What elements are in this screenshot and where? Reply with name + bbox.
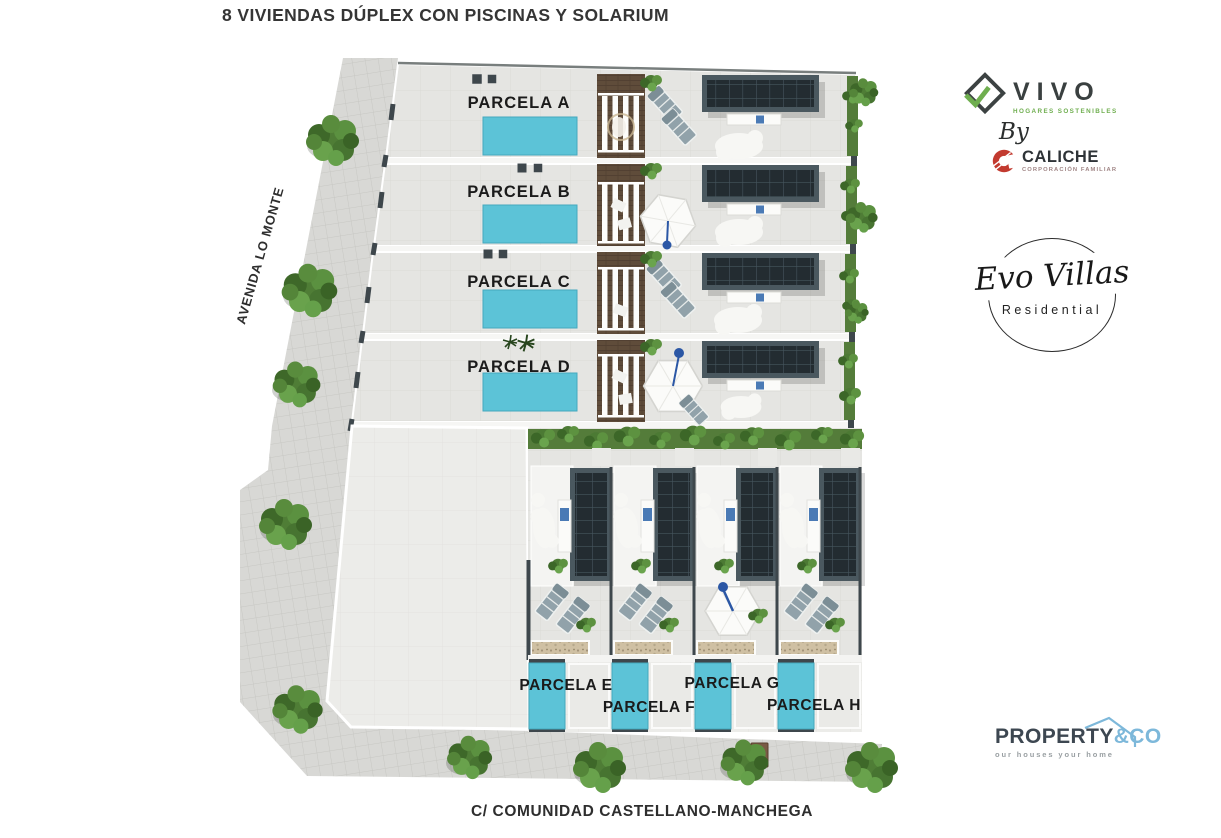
pool-parcel-a [483,117,577,155]
pool-parcel-b [483,205,577,243]
property-co-house-icon [1083,716,1139,748]
pool-parcel-c [483,290,577,328]
deck-parcel-c [597,252,645,334]
vivo-name: VIVO [1013,80,1118,105]
parcel-a-label: PARCELA A [468,94,571,112]
deck-parcel-d [597,340,645,422]
vivo-diamond-icon [963,72,1007,120]
roof-parcel-d [702,341,825,384]
plaza-area [327,426,529,729]
evo-villas-logo: Evo Villas Residential [986,236,1118,354]
page-title: 8 VIVIENDAS DÚPLEX CON PISCINAS Y SOLARI… [222,5,669,26]
hedge-top-lower-block [528,426,864,451]
deck-parcel-b [597,164,645,246]
parcel-e-label: PARCELA E [519,677,612,694]
pool-parcel-g [695,663,731,729]
vivo-tagline: HOGARES SOSTENIBLES [1013,108,1118,115]
evo-villas-subtitle: Residential [986,303,1118,317]
deck-parcel-a [597,74,645,158]
property-co-logo: PROPERTY&CO our houses your home [995,716,1165,759]
vivo-by-text: By [999,121,1133,144]
property-co-name: PROPERTY&CO [995,726,1165,747]
roof-parcel-c [702,253,825,296]
pool-parcel-e [529,663,565,729]
roof-parcel-a [702,75,825,118]
vivo-caliche-logo: VIVO HOGARES SOSTENIBLES By CALICHE CORP… [963,72,1133,176]
pool-parcel-d [483,373,577,411]
caliche-name: CALICHE [1022,149,1117,166]
pool-parcel-h [778,663,814,729]
parcel-f-label: PARCELA F [603,699,695,716]
parcel-h-label: PARCELA H [767,697,861,714]
site-plan-page: PARCELA A PARCELA B PARCELA C PARCELA D … [0,0,1221,838]
street-label-comunidad: C/ COMUNIDAD CASTELLANO-MANCHEGA [392,803,892,821]
parcel-g-label: PARCELA G [685,675,780,692]
parcel-c-label: PARCELA C [467,273,570,291]
caliche-tagline: CORPORACIÓN FAMILIAR [1022,167,1117,173]
pool-parcel-f [612,663,648,729]
property-co-tagline: our houses your home [995,750,1165,759]
parcel-d-label: PARCELA D [467,358,570,376]
caliche-icon [991,146,1018,176]
parcel-b-label: PARCELA B [467,183,570,201]
roof-parcel-b [702,165,825,208]
